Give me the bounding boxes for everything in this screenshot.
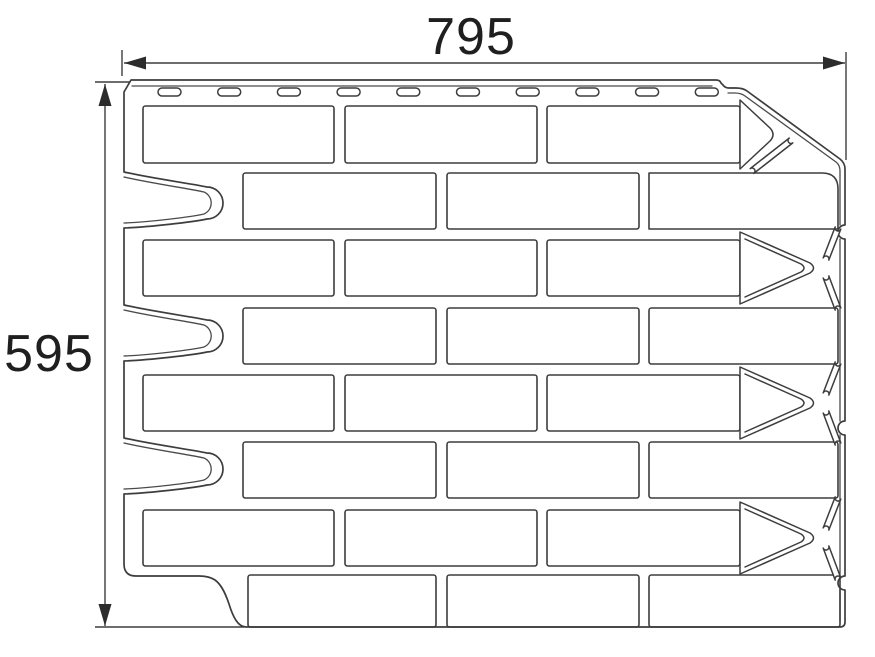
nail-slot xyxy=(516,88,539,96)
brick xyxy=(248,575,436,627)
dim-arrow-up-icon xyxy=(99,84,112,106)
joint-strip xyxy=(823,362,841,395)
panel-outline xyxy=(124,80,845,627)
brick xyxy=(143,106,334,163)
brick xyxy=(447,173,639,229)
brick xyxy=(243,442,436,498)
brick xyxy=(345,240,537,296)
brick xyxy=(649,308,838,364)
top-dimension-label: 795 xyxy=(426,8,516,66)
brick xyxy=(345,106,537,163)
dim-arrow-left-icon xyxy=(124,57,146,70)
brick xyxy=(345,510,537,566)
drawing-canvas: 795 595 xyxy=(0,0,875,657)
brick xyxy=(547,375,740,431)
joint-strip xyxy=(823,497,841,530)
dim-arrow-down-icon xyxy=(99,604,112,626)
brick xyxy=(243,173,436,229)
top-dimension: 795 xyxy=(122,8,846,160)
brick xyxy=(447,442,639,498)
brick-end-triangle xyxy=(740,367,814,439)
brick xyxy=(345,375,537,431)
brick-end-triangle xyxy=(740,232,814,304)
panel-inner-lines xyxy=(124,86,840,621)
brick xyxy=(649,173,838,229)
nail-slot xyxy=(636,88,659,96)
brick xyxy=(649,442,838,498)
nail-slot-row xyxy=(158,88,718,96)
nail-slot xyxy=(576,88,599,96)
joint-strip xyxy=(823,227,841,260)
joint-strip xyxy=(823,276,841,310)
left-dimension-label: 595 xyxy=(4,325,94,383)
brick xyxy=(447,308,639,364)
brick-end-triangle xyxy=(740,502,814,574)
brick xyxy=(547,240,740,296)
brick xyxy=(547,510,740,566)
brick xyxy=(143,375,334,431)
brick xyxy=(547,106,740,163)
nail-slot xyxy=(218,88,241,96)
right-edge-lock-details xyxy=(740,100,841,580)
nail-slot xyxy=(337,88,360,96)
brick xyxy=(143,510,334,566)
brick-grid xyxy=(143,106,840,627)
nail-slot xyxy=(397,88,420,96)
dim-arrow-right-icon xyxy=(823,57,845,70)
brick xyxy=(649,575,840,627)
brick xyxy=(243,308,436,364)
brick xyxy=(143,240,334,296)
nail-slot xyxy=(277,88,300,96)
nail-slot xyxy=(695,88,718,96)
panel-technical-drawing: 795 595 xyxy=(0,0,875,657)
nail-slot xyxy=(158,88,181,96)
nail-slot xyxy=(457,88,480,96)
brick xyxy=(447,575,639,627)
